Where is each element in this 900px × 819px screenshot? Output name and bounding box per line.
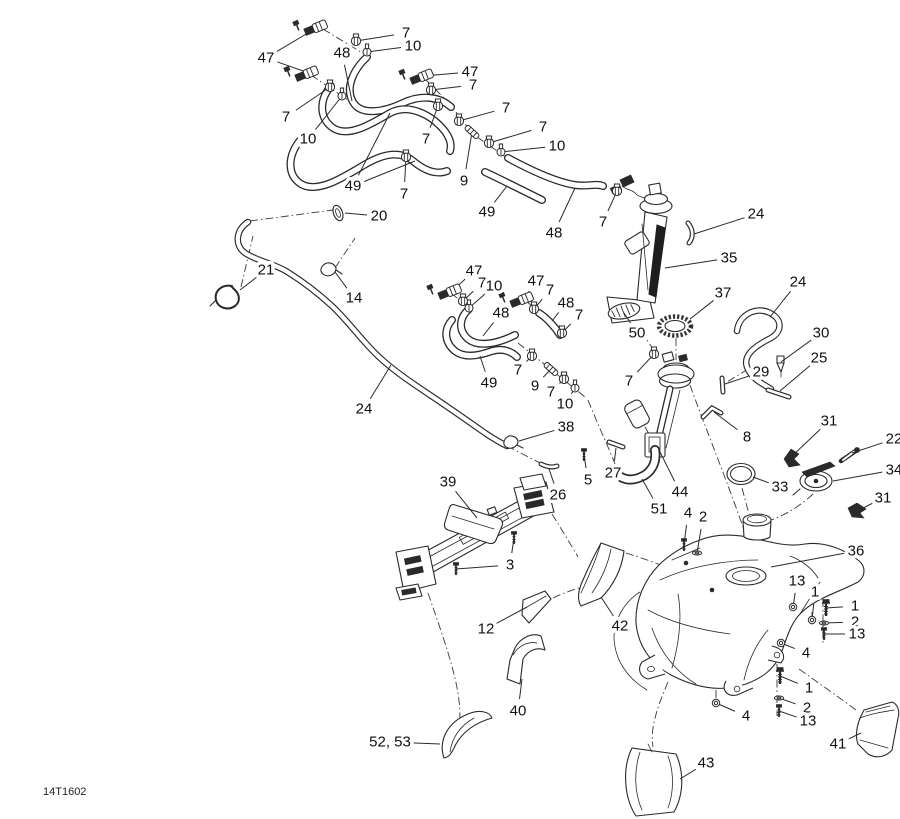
leader-line	[335, 272, 347, 288]
callout-34: 34	[886, 462, 900, 479]
clip-21-drawing	[210, 286, 239, 309]
leader-line	[792, 429, 820, 456]
pinch-marker	[363, 44, 371, 56]
fuel-pump-35-drawing	[607, 175, 672, 323]
valve-30-drawing	[777, 356, 784, 377]
callout-4: 4	[802, 645, 810, 662]
callout-4: 4	[684, 505, 692, 522]
callout-30: 30	[813, 325, 830, 342]
filler-neck	[743, 514, 771, 540]
grommet-20-drawing	[331, 204, 345, 222]
clamp-marker	[529, 302, 538, 314]
callout-42: 42	[612, 618, 629, 635]
pad-41-drawing	[857, 702, 899, 757]
callout-14: 14	[346, 290, 363, 307]
leader-line	[552, 312, 559, 321]
leader-line	[780, 366, 810, 391]
callout-7: 7	[400, 186, 408, 203]
callout-20: 20	[371, 208, 388, 225]
callout-24: 24	[748, 206, 765, 223]
tube-25-drawing	[768, 390, 789, 397]
callout-47: 47	[258, 50, 275, 67]
tube-29-drawing	[722, 378, 723, 392]
clamp-marker	[351, 34, 360, 46]
callout-29: 29	[753, 364, 770, 381]
tube-24-short-drawing	[688, 223, 692, 243]
washer-marker	[819, 621, 828, 625]
leader-line	[489, 130, 531, 143]
pinch-marker	[497, 144, 505, 156]
callout-7: 7	[599, 214, 607, 231]
leader-line	[714, 412, 737, 430]
leader-line	[833, 472, 882, 481]
leader-line	[559, 188, 575, 222]
leader-line	[501, 147, 545, 152]
leader-line	[459, 111, 494, 121]
callout-49: 49	[479, 204, 496, 221]
clip-38-drawing	[504, 436, 523, 448]
leader-line	[779, 711, 797, 717]
hose-48-mid-b-drawing	[539, 313, 560, 335]
clamp-marker	[527, 349, 536, 361]
callout-7: 7	[282, 109, 290, 126]
callout-24: 24	[356, 401, 373, 418]
leader-line	[694, 218, 745, 234]
leader-line	[367, 48, 401, 52]
callout-9: 9	[531, 378, 539, 395]
shell-43-drawing	[626, 744, 682, 816]
fitting-marker	[427, 275, 462, 304]
leader-line	[345, 213, 367, 215]
callout-24: 24	[790, 274, 807, 291]
callout-49: 49	[345, 178, 362, 195]
callout-35: 35	[721, 250, 738, 267]
leader-line	[370, 365, 391, 399]
callout-7: 7	[514, 362, 522, 379]
callout-44: 44	[672, 484, 689, 501]
callout-49: 49	[481, 375, 498, 392]
callout-50: 50	[629, 325, 646, 342]
leader-line	[780, 676, 798, 683]
clamp-marker	[325, 80, 334, 92]
callout-25: 25	[811, 350, 828, 367]
tube-27-drawing	[609, 442, 623, 447]
callout-7: 7	[539, 119, 547, 136]
callout-43: 43	[698, 755, 715, 772]
pinch-marker	[338, 88, 346, 100]
clamp-marker	[559, 372, 568, 384]
callout-1: 1	[851, 598, 859, 615]
clamp-marker	[458, 294, 467, 306]
callout-12: 12	[478, 621, 495, 638]
callout-5: 5	[584, 472, 592, 489]
callout-3: 3	[506, 557, 514, 574]
nut-marker	[808, 616, 815, 623]
leader-line	[466, 132, 472, 169]
gasket-33-drawing	[727, 464, 755, 485]
hose-48-to-pump-drawing	[508, 158, 603, 186]
callout-48: 48	[546, 225, 563, 242]
callout-7: 7	[502, 100, 510, 117]
washer-marker	[774, 696, 783, 700]
leader-line	[660, 452, 675, 481]
leader-line	[753, 477, 769, 483]
fitting-marker	[284, 57, 319, 86]
callout-13: 13	[849, 626, 866, 643]
leader-line	[680, 769, 696, 779]
nut-marker	[789, 603, 796, 610]
callout-10: 10	[405, 38, 422, 55]
leader-line	[483, 322, 494, 336]
callout-7: 7	[546, 282, 554, 299]
callout-27: 27	[605, 465, 622, 482]
callout-7: 7	[625, 373, 633, 390]
callout-8: 8	[743, 429, 751, 446]
callout-7: 7	[469, 77, 477, 94]
callout-40: 40	[510, 703, 527, 720]
decal-52-53-drawing	[442, 711, 492, 758]
callout-13: 13	[800, 713, 817, 730]
leader-line	[665, 260, 717, 268]
leader-line	[494, 186, 507, 202]
leader-line	[642, 479, 653, 499]
callout-52-53: 52, 53	[369, 734, 411, 751]
callout-13: 13	[789, 573, 806, 590]
lock-ring-37-drawing	[659, 317, 691, 336]
leader-line	[356, 35, 394, 41]
clamp-marker	[426, 83, 435, 95]
callout-10: 10	[549, 138, 566, 155]
callout-36: 36	[848, 543, 865, 560]
callout-48: 48	[493, 305, 510, 322]
callout-47: 47	[528, 273, 545, 290]
leader-line	[549, 469, 554, 484]
leader-line	[725, 376, 750, 384]
tube-26-drawing	[541, 464, 557, 467]
bracket-40-drawing	[507, 635, 545, 684]
leader-line	[614, 448, 616, 461]
callout-38: 38	[558, 419, 575, 436]
screw-marker	[581, 449, 586, 462]
callout-10: 10	[486, 278, 503, 295]
diagram-artwork: 4771048710477771079749494872021142447710…	[0, 0, 900, 819]
leader-line	[826, 607, 843, 608]
callout-48: 48	[334, 45, 351, 62]
leader-line	[519, 430, 554, 441]
washer-marker	[692, 551, 701, 555]
leader-line	[770, 291, 791, 317]
leader-line	[456, 566, 498, 569]
callout-2: 2	[699, 509, 707, 526]
leader-line	[601, 597, 613, 616]
fitting-marker	[293, 11, 328, 40]
callout-4: 4	[742, 708, 750, 725]
bracket-39-drawing	[396, 474, 554, 600]
nut-marker	[777, 639, 784, 646]
hose-49-straight-drawing	[485, 172, 542, 200]
clamp-marker	[649, 347, 658, 359]
callout-22: 22	[886, 431, 900, 448]
callout-labels: 4771048710477771079749494872021142447710…	[258, 25, 900, 772]
callout-41: 41	[830, 736, 847, 753]
screw-marker	[511, 532, 516, 545]
callout-31: 31	[821, 413, 838, 430]
leader-line	[480, 356, 485, 372]
pinch-marker	[571, 380, 579, 392]
clip-31-upper-drawing	[784, 449, 800, 467]
callout-31: 31	[875, 490, 892, 507]
drawing-code: 14T1602	[43, 786, 86, 798]
clamp-marker	[484, 136, 493, 148]
clip-14-drawing	[321, 263, 342, 276]
callout-51: 51	[651, 501, 668, 518]
callout-48: 48	[558, 295, 575, 312]
fuel-sender-51-drawing	[609, 352, 694, 480]
callout-37: 37	[715, 285, 732, 302]
callout-10: 10	[557, 396, 574, 413]
parts-diagram-page: 4771048710477771079749494872021142447710…	[0, 0, 900, 819]
nut-marker	[712, 699, 719, 706]
callout-1: 1	[811, 584, 819, 601]
pin-22-drawing	[841, 447, 860, 461]
deflector-42-drawing	[579, 543, 624, 606]
tube-marker	[464, 125, 480, 140]
callout-33: 33	[772, 479, 789, 496]
leader-line	[690, 300, 714, 319]
callout-26: 26	[550, 487, 567, 504]
fuel-cap-34-drawing	[793, 462, 835, 495]
callout-1: 1	[805, 680, 813, 697]
callout-7: 7	[547, 384, 555, 401]
callout-21: 21	[258, 262, 275, 279]
callout-7: 7	[422, 131, 430, 148]
callout-7: 7	[575, 307, 583, 324]
callout-39: 39	[440, 474, 457, 491]
callout-10: 10	[300, 131, 317, 148]
clamp-marker	[454, 114, 463, 126]
leader-line	[781, 340, 811, 362]
callout-9: 9	[460, 173, 468, 190]
